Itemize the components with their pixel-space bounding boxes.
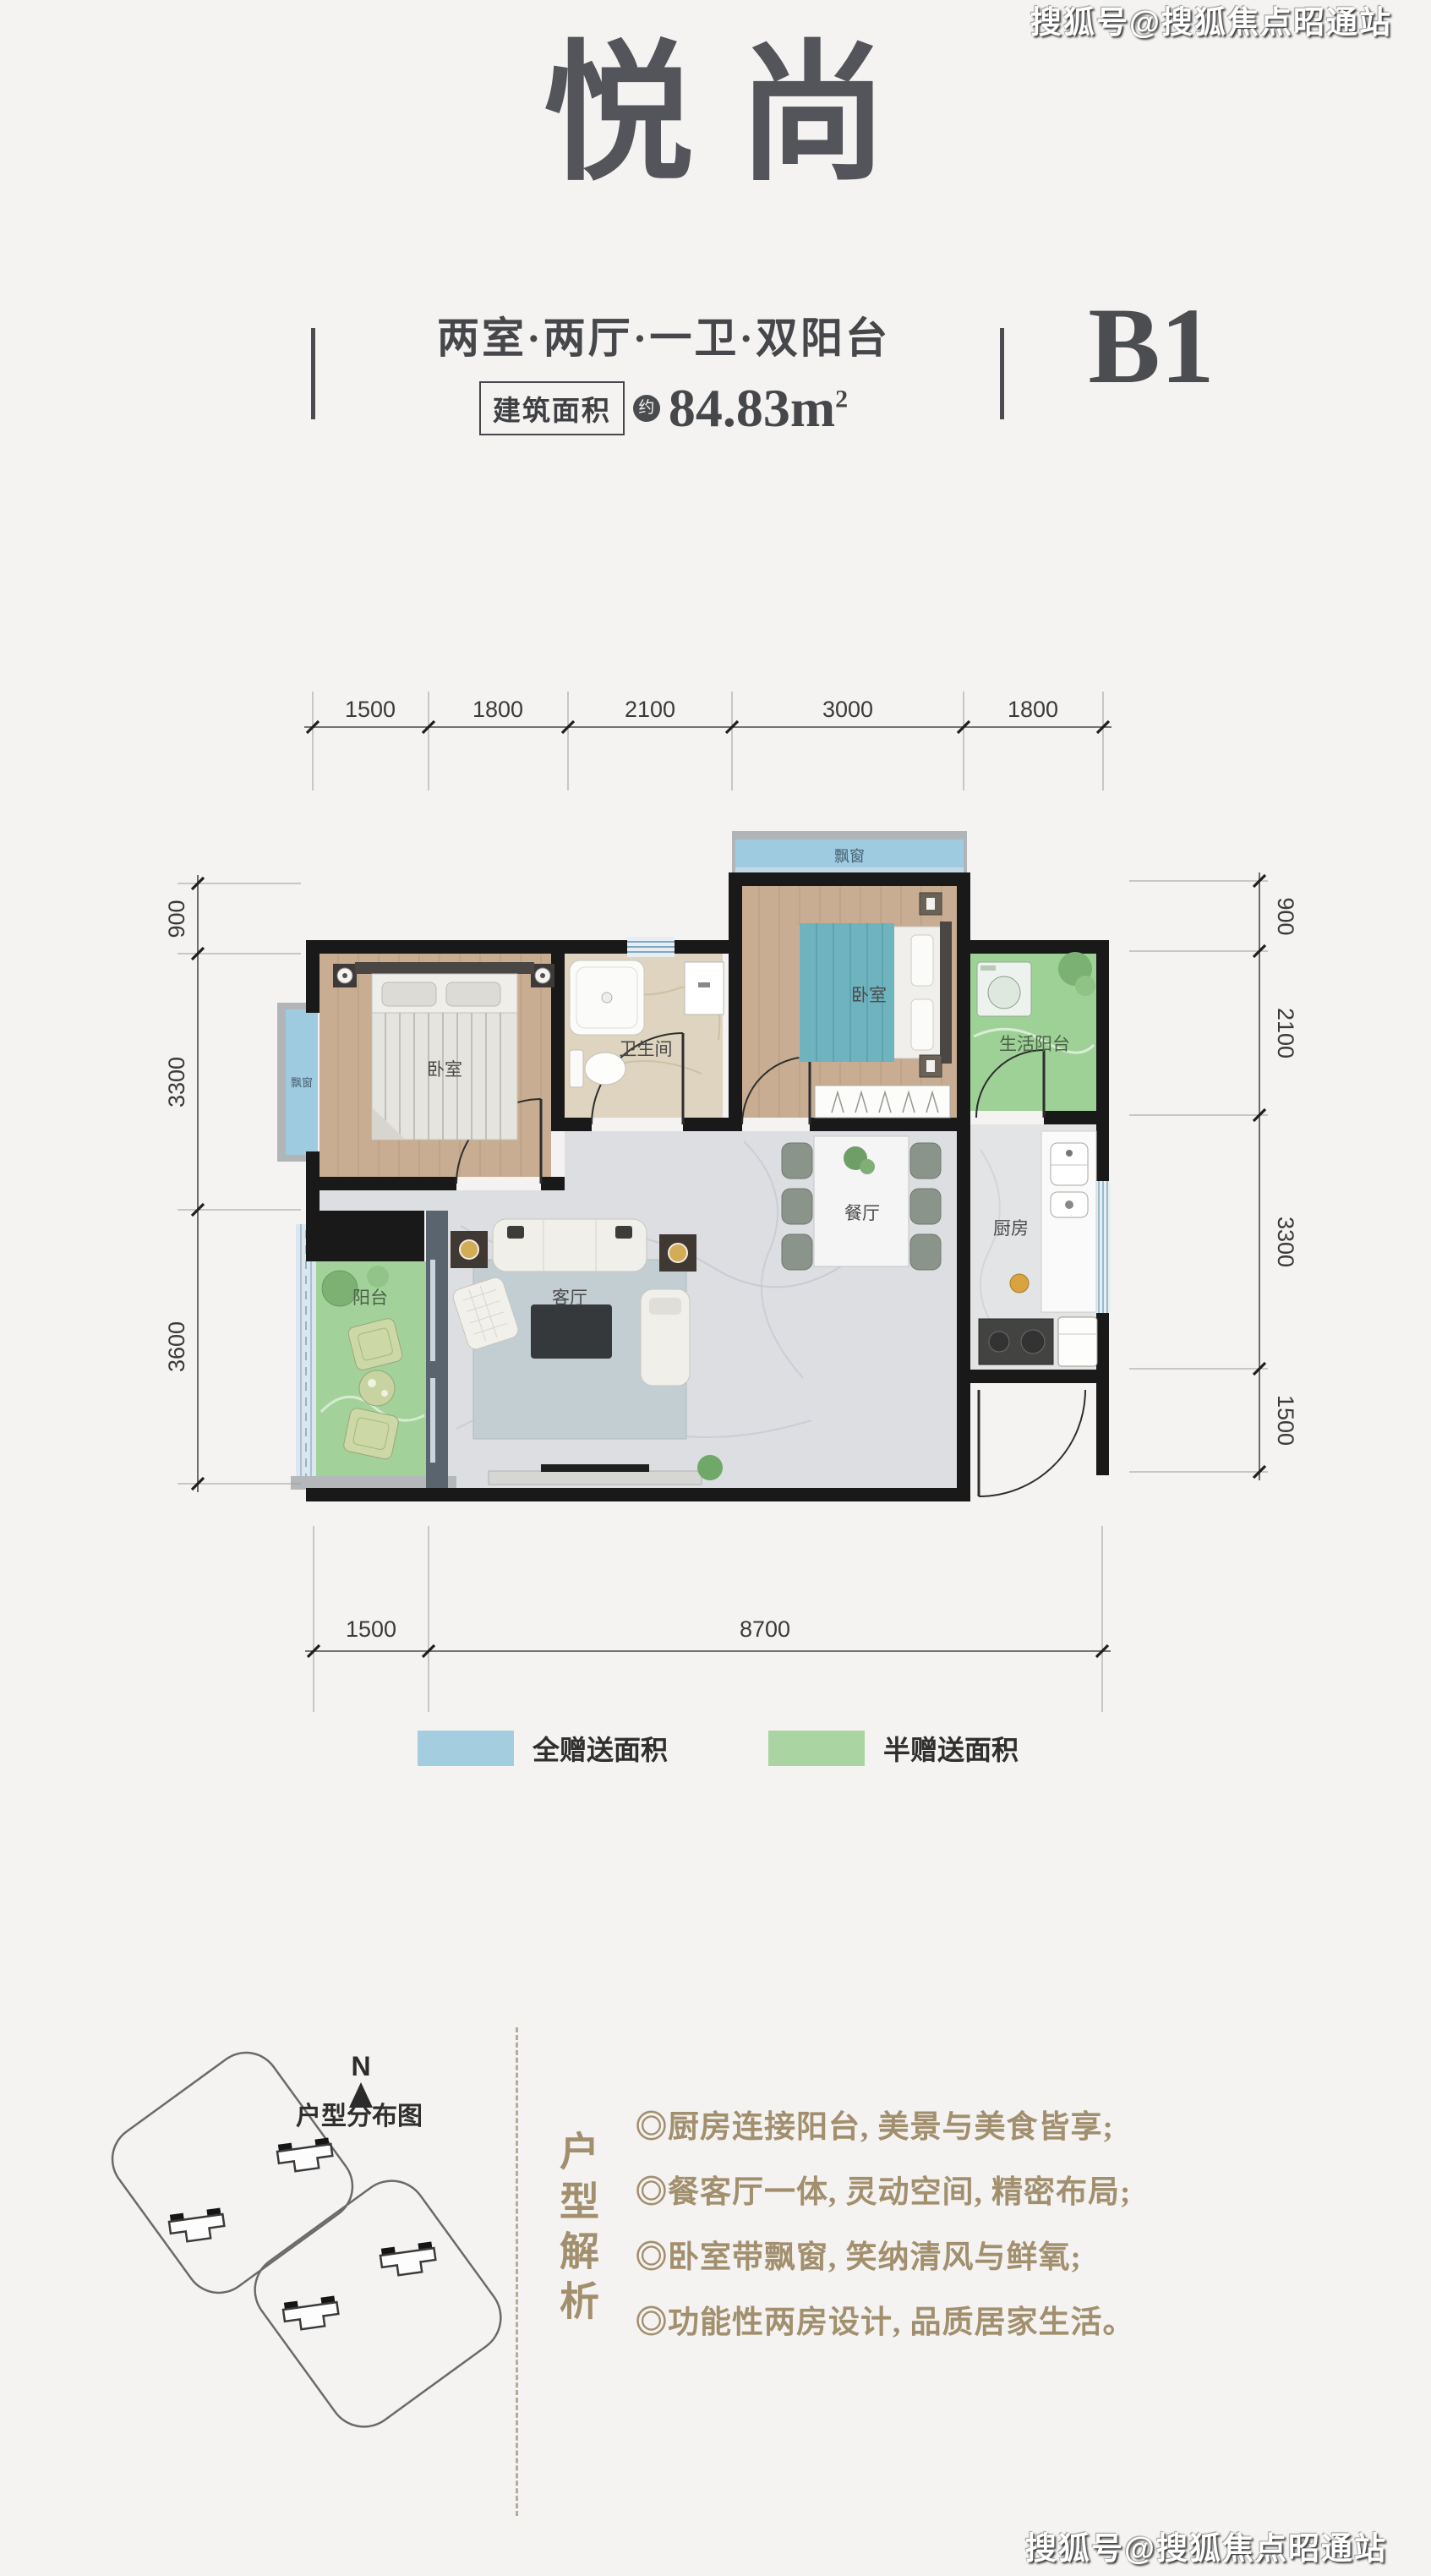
sink (1051, 1143, 1088, 1185)
wall (675, 940, 735, 954)
wall (729, 872, 970, 886)
shower-drain (602, 993, 612, 1003)
coffee-table (531, 1304, 612, 1359)
legend-label: 全赠送面积 (533, 1729, 668, 1768)
drain (1065, 1200, 1073, 1209)
area-line: 建筑面积 约 84.83m2 (355, 377, 972, 440)
washer-drum (988, 976, 1020, 1009)
analysis-bullets: ◎厨房连接阳台, 美景与美食皆享; ◎餐客厅一体, 灵动空间, 精密布局; ◎卧… (636, 2095, 1312, 2355)
page-title: 悦尚 (0, 24, 1431, 207)
vanity-handle (698, 982, 710, 987)
site-map: N 户型分布图 (68, 2025, 541, 2498)
cup (381, 1390, 388, 1397)
dim-label: 900 (164, 900, 189, 938)
analysis-title: 户型解析 (546, 2130, 604, 2330)
dim-label: 3600 (164, 1321, 189, 1372)
room-label: 卧室 (427, 1060, 462, 1080)
chair (910, 1143, 941, 1179)
approx-badge: 约 (633, 395, 660, 422)
divider-bar-right (1000, 328, 1004, 419)
headboard (355, 962, 534, 974)
dim-label: 3300 (164, 1057, 189, 1108)
legend-swatch-blue (418, 1731, 514, 1766)
partition-light-1 (430, 1260, 435, 1361)
table-plant-leaf (860, 1159, 875, 1174)
wall (541, 1177, 565, 1190)
washer-panel (980, 965, 996, 971)
pillow (382, 982, 436, 1006)
area-number: 84.83m (669, 378, 835, 438)
area-superscript: 2 (835, 386, 848, 413)
room-label: 阳台 (352, 1288, 388, 1308)
wall (1096, 940, 1109, 1181)
wall (683, 1118, 735, 1131)
room-label: 卧室 (851, 986, 887, 1005)
bay-window-top-frame (732, 831, 967, 840)
wall (306, 940, 320, 1013)
room-label: 厨房 (993, 1219, 1029, 1239)
chair (782, 1143, 812, 1179)
legend-item-full-gift: 全赠送面积 (418, 1729, 668, 1768)
lounge-chair (342, 1407, 400, 1460)
dim-label: 900 (1273, 897, 1298, 935)
wall (306, 1488, 970, 1501)
cup (368, 1379, 376, 1387)
tv (541, 1464, 649, 1472)
area-label: 建筑面积 (479, 381, 625, 435)
wall (957, 1111, 970, 1501)
watermark-bottom: 搜狐号@搜狐焦点昭通站 (1025, 2523, 1387, 2568)
site-plot (99, 2039, 366, 2306)
burner (989, 1332, 1009, 1352)
wall (970, 1370, 1109, 1383)
pillow (446, 982, 500, 1006)
bay-window-left-frame (277, 1003, 286, 1162)
chair (910, 1189, 941, 1224)
analysis-bullet: ◎功能性两房设计, 品质居家生活。 (636, 2290, 1312, 2355)
compass-label: N (351, 2051, 370, 2081)
dim-label: 1500 (345, 697, 396, 722)
dim-label: 1800 (1008, 697, 1058, 722)
dim-label: 1500 (1273, 1395, 1298, 1446)
burner (1021, 1330, 1045, 1354)
divider-bar-left (311, 328, 315, 419)
analysis-bullet: ◎餐客厅一体, 灵动空间, 精密布局; (636, 2160, 1312, 2225)
patio-table (359, 1370, 395, 1406)
lamp-glow (669, 1244, 687, 1262)
entry-door-arc (979, 1390, 1085, 1496)
room-label: 生活阳台 (999, 1035, 1070, 1054)
room-label: 客厅 (552, 1288, 587, 1308)
legend-label: 半赠送面积 (883, 1729, 1019, 1768)
legend-item-half-gift: 半赠送面积 (768, 1729, 1019, 1768)
wall (306, 1177, 456, 1190)
room-label: 餐厅 (844, 1204, 880, 1223)
building-footprint (276, 2137, 334, 2174)
switch-dot (926, 898, 935, 910)
room-label: 卫生间 (620, 1040, 673, 1059)
balcony-living-partition (426, 1211, 448, 1490)
dim-label: 3000 (822, 697, 873, 722)
tv-console (489, 1471, 702, 1485)
headboard (940, 922, 952, 1064)
plant (697, 1455, 723, 1480)
wall (957, 886, 970, 1131)
throw-pillow (615, 1226, 632, 1239)
unit-code: B1 (1058, 284, 1244, 408)
area-value: 84.83m2 (669, 377, 848, 440)
dim-label: 2100 (625, 697, 675, 722)
faucet (1066, 1150, 1073, 1157)
bay-window-top-sill (735, 867, 964, 873)
chair (782, 1234, 812, 1270)
analysis-bullet: ◎厨房连接阳台, 美景与美食皆享; (636, 2095, 1312, 2160)
partition-light-2 (430, 1378, 435, 1463)
site-map-caption: 户型分布图 (296, 2103, 423, 2130)
floor-plan: 飘窗 飘窗 卧室 卫生间 卧室 生活阳台 餐厅 厨房 客厅 阳台 (0, 668, 1431, 1775)
fridge (1058, 1317, 1097, 1366)
wall (964, 940, 1109, 954)
wall (306, 940, 627, 954)
lamp-dot (342, 973, 347, 978)
dim-label: 8700 (740, 1616, 790, 1642)
lamp-dot (540, 973, 545, 978)
armchair-pillow (649, 1298, 681, 1315)
building-footprint (168, 2207, 226, 2244)
pillow (911, 935, 933, 986)
site-plot (241, 2167, 515, 2441)
flyer-page: 搜狐号@搜狐焦点昭通站 悦尚 两室·两厅·一卫·双阳台 建筑面积 约 84.83… (0, 0, 1431, 2576)
legend-swatch-green (768, 1731, 865, 1766)
dashed-divider (516, 2027, 518, 2516)
layout-description: 两室·两厅·一卫·双阳台 (355, 304, 972, 365)
plant (1075, 976, 1095, 996)
room-label: 飘窗 (834, 848, 865, 865)
building-footprint (282, 2295, 340, 2332)
dim-label: 1800 (472, 697, 523, 722)
dim-label: 2100 (1273, 1008, 1298, 1058)
dining-furniture (782, 1136, 941, 1270)
unit-summary: 两室·两厅·一卫·双阳台 建筑面积 约 84.83m2 (355, 304, 972, 440)
wall (1096, 1383, 1109, 1475)
subheader: 两室·两厅·一卫·双阳台 建筑面积 约 84.83m2 B1 (0, 298, 1431, 458)
wall (729, 872, 742, 1131)
pillow (911, 999, 933, 1050)
pot (1010, 1274, 1029, 1293)
dim-label: 1500 (346, 1616, 396, 1642)
building-footprint (380, 2241, 437, 2278)
lamp-glow (460, 1240, 478, 1259)
plant (367, 1266, 389, 1288)
wall (306, 1211, 424, 1261)
chair (910, 1234, 941, 1270)
room-label: 飘窗 (291, 1076, 313, 1089)
lounge-chair-base (342, 1407, 400, 1460)
wall (810, 1118, 964, 1131)
toilet-tank (570, 1050, 583, 1087)
vanity (685, 962, 724, 1015)
dim-label: 3300 (1273, 1217, 1298, 1267)
chair (782, 1189, 812, 1224)
switch-dot (926, 1060, 935, 1072)
wall (1044, 1111, 1109, 1124)
throw-pillow (507, 1226, 524, 1239)
analysis-bullet: ◎卧室带飘窗, 笑纳清风与鲜氧; (636, 2225, 1312, 2290)
